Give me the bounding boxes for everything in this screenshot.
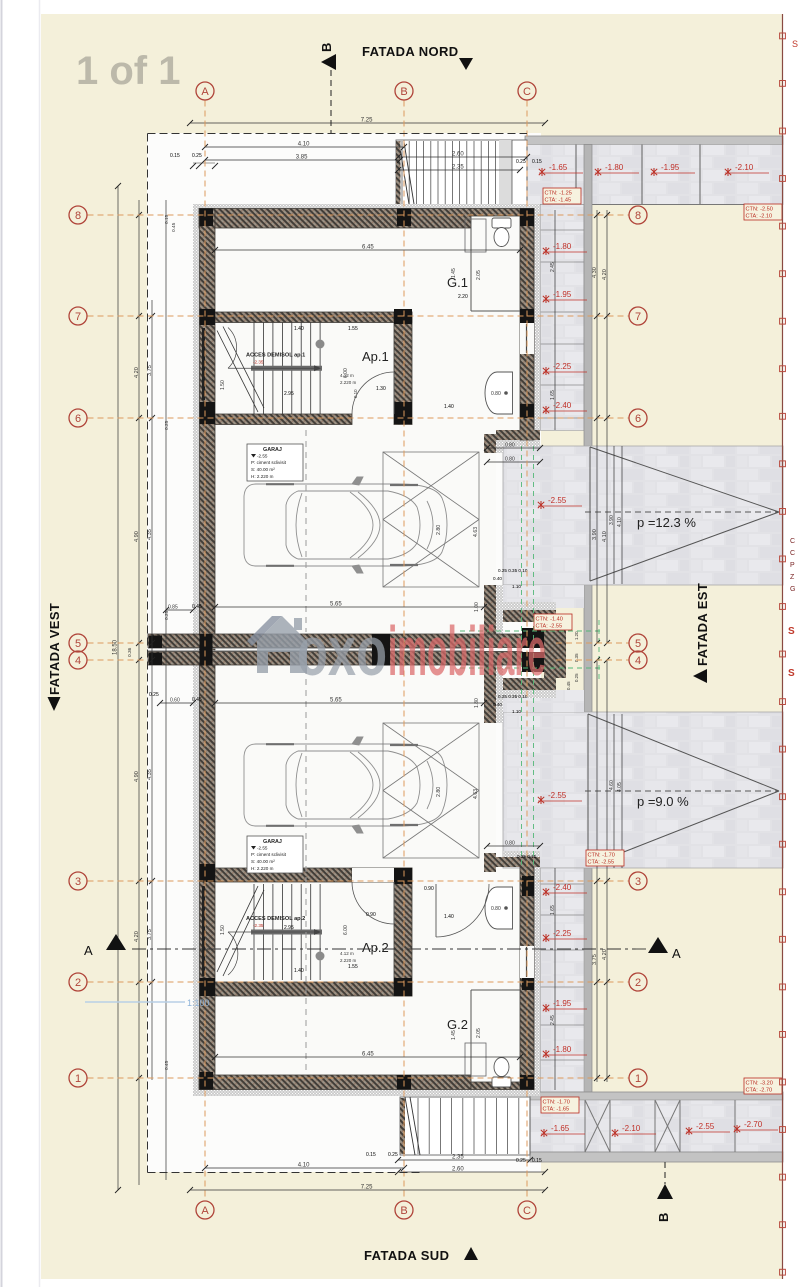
svg-text:CTN: -1.70: CTN: -1.70 — [588, 853, 615, 859]
svg-text:2.45: 2.45 — [550, 262, 556, 272]
svg-text:0.45: 0.45 — [192, 604, 202, 610]
svg-text:FATADA EST: FATADA EST — [695, 583, 710, 666]
svg-text:CTN: -3.20: CTN: -3.20 — [746, 1081, 773, 1087]
svg-text:-2.55: -2.55 — [696, 1122, 715, 1131]
svg-text:1: 1 — [75, 1073, 81, 1085]
svg-text:0.15: 0.15 — [532, 1158, 542, 1164]
svg-text:1.55: 1.55 — [348, 326, 358, 332]
svg-text:4.10: 4.10 — [602, 531, 608, 542]
svg-text:1.10: 1.10 — [512, 709, 521, 714]
svg-text:C: C — [523, 86, 531, 98]
svg-text:CTA: -2.70: CTA: -2.70 — [746, 1088, 773, 1094]
svg-text:Ap.2: Ap.2 — [362, 940, 389, 955]
svg-text:2.05: 2.05 — [476, 1028, 482, 1038]
svg-text:2.220 m: 2.220 m — [340, 958, 357, 963]
svg-text:ACCES DEMISOL ap.1: ACCES DEMISOL ap.1 — [246, 352, 305, 358]
svg-text:0.25: 0.25 — [164, 420, 170, 430]
svg-text:-1.80: -1.80 — [605, 163, 624, 172]
svg-text:-2.10: -2.10 — [622, 1124, 641, 1133]
svg-text:5.65: 5.65 — [330, 602, 342, 608]
svg-text:-2.55: -2.55 — [257, 454, 268, 459]
svg-text:0.45: 0.45 — [171, 222, 177, 232]
svg-text:1:100: 1:100 — [187, 998, 210, 1008]
svg-text:CTN: -2.50: CTN: -2.50 — [746, 207, 773, 213]
svg-text:P: ciment sclivisit: P: ciment sclivisit — [251, 852, 287, 857]
svg-text:-1.95: -1.95 — [553, 290, 572, 299]
svg-text:-2.35: -2.35 — [253, 359, 264, 364]
svg-text:3: 3 — [75, 876, 81, 888]
svg-text:CTA: -2.10: CTA: -2.10 — [746, 214, 773, 220]
svg-text:3.75: 3.75 — [592, 954, 598, 965]
svg-text:0.25 0.35 0.10: 0.25 0.35 0.10 — [498, 568, 528, 573]
svg-text:B: B — [400, 86, 407, 98]
svg-text:-2.55: -2.55 — [548, 791, 567, 800]
svg-text:GARAJ: GARAJ — [263, 839, 282, 845]
svg-text:4: 4 — [635, 655, 641, 667]
svg-text:2.95: 2.95 — [284, 391, 294, 397]
svg-text:0.25: 0.25 — [516, 159, 526, 165]
svg-text:-1.65: -1.65 — [551, 1124, 570, 1133]
svg-text:6.45: 6.45 — [362, 245, 374, 251]
svg-text:0.90: 0.90 — [366, 912, 376, 918]
svg-text:4.12 m: 4.12 m — [340, 951, 354, 956]
svg-text:1.40: 1.40 — [444, 404, 454, 410]
svg-text:4.90: 4.90 — [134, 531, 140, 542]
svg-text:B: B — [656, 1213, 671, 1222]
svg-text:6.00: 6.00 — [343, 368, 349, 378]
svg-text:CTA: -1.45: CTA: -1.45 — [545, 198, 572, 204]
svg-text:-2.25: -2.25 — [553, 362, 572, 371]
svg-text:B: B — [319, 43, 334, 52]
svg-text:8: 8 — [75, 210, 81, 222]
svg-text:4.30: 4.30 — [592, 267, 598, 278]
svg-text:A: A — [201, 1205, 209, 1217]
svg-text:0.15: 0.15 — [164, 214, 170, 224]
svg-text:2.45: 2.45 — [550, 1015, 556, 1025]
svg-text:1.45: 1.45 — [451, 1030, 457, 1040]
svg-text:CTA: -1.65: CTA: -1.65 — [543, 1107, 570, 1113]
svg-text:A: A — [84, 943, 93, 958]
svg-text:4.10: 4.10 — [617, 517, 623, 527]
svg-text:C: C — [790, 538, 795, 545]
svg-text:-2.55: -2.55 — [257, 846, 268, 851]
svg-text:2.60: 2.60 — [452, 1167, 464, 1173]
svg-text:7.25: 7.25 — [361, 118, 373, 124]
svg-text:H: 2.220 m: H: 2.220 m — [251, 866, 274, 871]
svg-text:1.30: 1.30 — [376, 386, 386, 392]
svg-text:5: 5 — [75, 638, 81, 650]
svg-text:0.80: 0.80 — [505, 841, 515, 847]
svg-text:0.25: 0.25 — [192, 153, 202, 159]
svg-text:-1.80: -1.80 — [553, 242, 572, 251]
svg-text:S: S — [788, 668, 795, 679]
svg-text:1.65: 1.65 — [550, 390, 556, 400]
svg-text:oxo: oxo — [297, 612, 387, 690]
svg-text:2.80: 2.80 — [436, 525, 442, 535]
svg-text:5.65: 5.65 — [330, 698, 342, 704]
svg-text:1: 1 — [635, 1073, 641, 1085]
svg-text:0.36: 0.36 — [127, 647, 133, 657]
svg-text:2.20: 2.20 — [458, 294, 468, 300]
svg-text:2.60: 2.60 — [452, 152, 464, 158]
svg-text:0.40: 0.40 — [493, 576, 502, 581]
svg-text:p =9.0 %: p =9.0 % — [637, 794, 689, 809]
svg-text:-1.95: -1.95 — [661, 163, 680, 172]
svg-text:0.15: 0.15 — [366, 1152, 376, 1158]
svg-text:4.20: 4.20 — [602, 949, 608, 960]
svg-text:2.95: 2.95 — [284, 925, 294, 931]
svg-text:1.20: 1.20 — [574, 631, 579, 640]
svg-text:0.60: 0.60 — [170, 698, 180, 704]
svg-text:G.2: G.2 — [447, 1017, 468, 1032]
svg-text:imobiliare: imobiliare — [388, 612, 546, 690]
svg-text:0.90: 0.90 — [424, 886, 434, 892]
svg-text:1 of 1: 1 of 1 — [76, 49, 180, 93]
svg-text:P: P — [790, 562, 795, 569]
svg-text:CTA: -2.55: CTA: -2.55 — [588, 860, 615, 866]
svg-text:4.10: 4.10 — [298, 142, 310, 148]
svg-text:0.80: 0.80 — [491, 906, 501, 912]
svg-text:1.55: 1.55 — [348, 964, 358, 970]
svg-text:0.15: 0.15 — [170, 153, 180, 159]
svg-text:6: 6 — [635, 413, 641, 425]
svg-text:0.85: 0.85 — [168, 605, 178, 611]
svg-text:p =12.3 %: p =12.3 % — [637, 515, 696, 530]
svg-text:0.25: 0.25 — [164, 610, 170, 620]
svg-text:2.05: 2.05 — [476, 270, 482, 280]
svg-text:1.10: 1.10 — [512, 584, 521, 589]
svg-text:C: C — [523, 1205, 531, 1217]
svg-text:4.63: 4.63 — [473, 527, 479, 537]
svg-text:S: 40.00 m²: S: 40.00 m² — [251, 859, 275, 864]
svg-text:B: B — [400, 1205, 407, 1217]
svg-text:6.00: 6.00 — [343, 925, 349, 935]
svg-text:18.50: 18.50 — [113, 639, 119, 655]
svg-text:4.20: 4.20 — [134, 931, 140, 942]
svg-text:7: 7 — [635, 311, 641, 323]
svg-text:S: S — [792, 39, 798, 49]
svg-text:1.65: 1.65 — [550, 905, 556, 915]
svg-text:5: 5 — [635, 638, 641, 650]
svg-text:6.45: 6.45 — [362, 1052, 374, 1058]
svg-text:FATADA VEST: FATADA VEST — [47, 603, 62, 695]
svg-text:6: 6 — [75, 413, 81, 425]
svg-text:0.80: 0.80 — [505, 457, 515, 463]
svg-text:S: 40.00 m²: S: 40.00 m² — [251, 467, 275, 472]
svg-text:4.20: 4.20 — [134, 367, 140, 378]
svg-text:0.45: 0.45 — [192, 697, 202, 703]
svg-text:P: ciment sclivisit: P: ciment sclivisit — [251, 460, 287, 465]
svg-text:4.20: 4.20 — [602, 269, 608, 280]
svg-text:A: A — [672, 946, 681, 961]
svg-text:0.25: 0.25 — [516, 1158, 526, 1164]
svg-text:7: 7 — [75, 311, 81, 323]
svg-text:0.25: 0.25 — [388, 1152, 398, 1158]
svg-text:-1.80: -1.80 — [553, 1045, 572, 1054]
svg-text:-2.40: -2.40 — [553, 401, 572, 410]
svg-text:Z: Z — [790, 574, 795, 581]
svg-text:3.85: 3.85 — [296, 155, 308, 161]
svg-text:0.45: 0.45 — [566, 681, 571, 690]
svg-text:1.40: 1.40 — [294, 968, 304, 974]
svg-text:0.25: 0.25 — [574, 673, 579, 682]
svg-text:0.25 0.35 0.10: 0.25 0.35 0.10 — [498, 694, 528, 699]
svg-text:0.80: 0.80 — [491, 391, 501, 397]
svg-text:H: 2.220 m: H: 2.220 m — [251, 474, 274, 479]
svg-text:2: 2 — [635, 977, 641, 989]
svg-text:-1.95: -1.95 — [553, 999, 572, 1008]
svg-text:-2.55: -2.55 — [548, 496, 567, 505]
svg-text:FATADA NORD: FATADA NORD — [362, 44, 459, 59]
svg-text:1.80: 1.80 — [474, 698, 480, 708]
svg-text:4.60: 4.60 — [609, 780, 615, 790]
svg-text:FATADA SUD: FATADA SUD — [364, 1248, 449, 1263]
svg-text:3.90: 3.90 — [592, 529, 598, 540]
svg-text:-2.40: -2.40 — [553, 883, 572, 892]
svg-text:Ap.1: Ap.1 — [362, 349, 389, 364]
svg-text:ACCES DEMISOL ap.2: ACCES DEMISOL ap.2 — [246, 916, 305, 922]
svg-text:CTN: -1.70: CTN: -1.70 — [543, 1100, 570, 1106]
svg-text:S: S — [788, 626, 795, 637]
svg-text:0.45: 0.45 — [164, 1060, 170, 1070]
svg-text:G: G — [790, 586, 795, 593]
svg-text:-2.70: -2.70 — [744, 1120, 763, 1129]
svg-text:1.40: 1.40 — [294, 326, 304, 332]
svg-text:1.40: 1.40 — [444, 914, 454, 920]
svg-text:2.35: 2.35 — [452, 1155, 464, 1161]
svg-text:0.25: 0.25 — [149, 692, 159, 698]
svg-text:-2.10: -2.10 — [735, 163, 754, 172]
svg-text:2.220 m: 2.220 m — [340, 380, 357, 385]
svg-text:1.50: 1.50 — [220, 925, 226, 935]
svg-text:-2.35: -2.35 — [253, 923, 264, 928]
svg-text:2: 2 — [75, 977, 81, 989]
svg-text:2.80: 2.80 — [436, 787, 442, 797]
svg-text:C: C — [790, 550, 795, 557]
svg-text:2.35: 2.35 — [452, 165, 464, 171]
svg-text:0.40: 0.40 — [493, 702, 502, 707]
svg-text:4.10: 4.10 — [298, 1163, 310, 1169]
svg-text:4.90: 4.90 — [134, 771, 140, 782]
svg-text:A: A — [201, 86, 209, 98]
svg-text:0.80: 0.80 — [505, 443, 515, 449]
svg-text:1.00: 1.00 — [474, 602, 480, 612]
svg-text:0.35: 0.35 — [574, 653, 579, 662]
svg-text:7.25: 7.25 — [361, 1185, 373, 1191]
svg-text:4: 4 — [75, 655, 81, 667]
svg-text:4.05: 4.05 — [617, 782, 623, 792]
svg-text:0.10: 0.10 — [353, 389, 358, 398]
svg-text:-2.25: -2.25 — [553, 929, 572, 938]
svg-text:1.50: 1.50 — [220, 380, 226, 390]
svg-text:3: 3 — [635, 876, 641, 888]
svg-text:GARAJ: GARAJ — [263, 447, 282, 453]
svg-text:-1.65: -1.65 — [549, 163, 568, 172]
svg-text:1.45: 1.45 — [451, 268, 457, 278]
svg-text:0.15: 0.15 — [532, 159, 542, 165]
svg-text:8: 8 — [635, 210, 641, 222]
svg-text:CTN: -1.25: CTN: -1.25 — [545, 191, 572, 197]
svg-text:3.90: 3.90 — [609, 515, 615, 525]
svg-text:4.63: 4.63 — [473, 789, 479, 799]
